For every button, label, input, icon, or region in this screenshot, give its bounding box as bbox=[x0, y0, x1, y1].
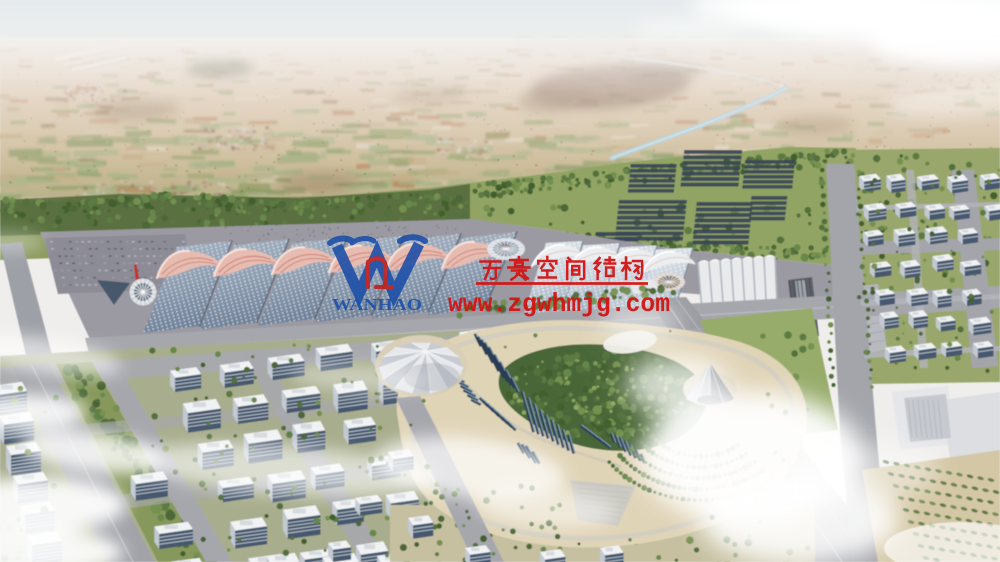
svg-text:WANHAO: WANHAO bbox=[332, 295, 422, 314]
svg-text:www.zgwhmjg.com: www.zgwhmjg.com bbox=[448, 289, 670, 319]
